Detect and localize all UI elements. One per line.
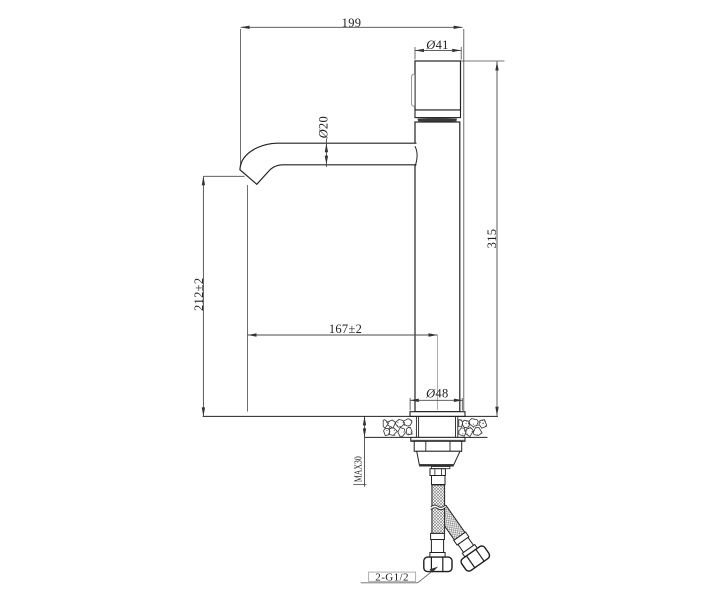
svg-text:Ø48: Ø48 (425, 387, 448, 401)
svg-text:2-G1/2: 2-G1/2 (375, 571, 409, 583)
svg-text:199: 199 (342, 16, 362, 30)
svg-text:Ø20: Ø20 (316, 116, 330, 139)
svg-text:Ø41: Ø41 (425, 38, 448, 52)
svg-text:315: 315 (485, 229, 499, 249)
svg-text:MAX30: MAX30 (352, 456, 363, 482)
svg-text:167±2: 167±2 (329, 322, 362, 336)
svg-text:212±2: 212±2 (192, 278, 206, 311)
